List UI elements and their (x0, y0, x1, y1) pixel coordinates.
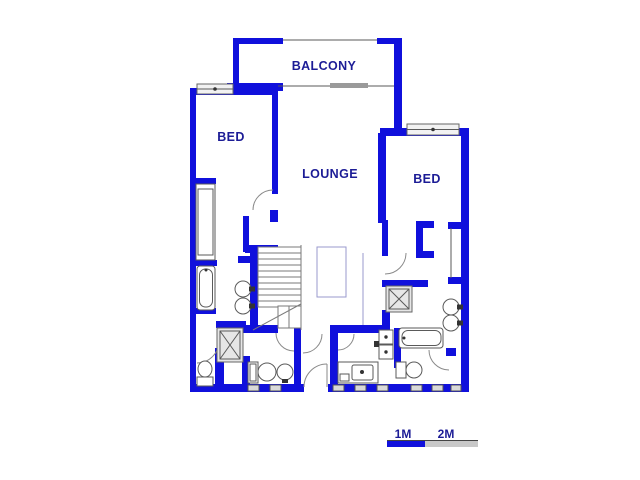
basin-tap (457, 321, 463, 326)
bathtub-right-tap (403, 337, 406, 340)
bidet-tap (282, 379, 288, 383)
vent (451, 385, 461, 391)
washbasin-symbol (258, 363, 276, 381)
scale-bar-blue-segment (387, 441, 425, 447)
basin-tap (249, 287, 255, 292)
bathtub-left-inner (200, 269, 213, 307)
basin-symbol (443, 299, 459, 315)
wall-segment (190, 88, 196, 392)
wardrobe-inner (198, 189, 213, 255)
door-arc-mid-bathroom (276, 333, 294, 351)
scale-label-1m: 1M (395, 427, 412, 441)
wall-segment (190, 178, 216, 184)
wall-segment (382, 220, 388, 256)
door-arc-entrance (304, 364, 327, 387)
wall-segment (272, 88, 278, 194)
bathtub-right-inner (402, 331, 441, 346)
door-arc-right-corridor (385, 253, 406, 274)
wall-segment (190, 260, 217, 266)
floor-plan-drawing: BALCONY BED LOUNGE BED 1M 2M (0, 0, 640, 480)
hob-symbol (340, 374, 349, 381)
window-dot (431, 128, 435, 132)
wall-segment (448, 277, 462, 284)
room-labels: BALCONY BED LOUNGE BED (217, 59, 441, 186)
staircase (253, 245, 301, 330)
wall-segment (330, 325, 382, 333)
wall-segment (416, 221, 434, 228)
bathtub-left-tap (205, 269, 208, 272)
vent (411, 385, 422, 391)
basin-symbol (235, 298, 251, 314)
wall-segment (394, 38, 402, 135)
scale-label-2m: 2M (438, 427, 455, 441)
floor-plan-canvas: BALCONY BED LOUNGE BED 1M 2M (0, 0, 640, 480)
sink-drain-dot (384, 350, 387, 353)
balcony-sliding-door-panel (330, 83, 368, 88)
wall-segment (270, 210, 278, 222)
bidet-symbol (277, 364, 293, 380)
wall-segment (448, 222, 462, 229)
vent (248, 385, 259, 391)
toilet-right-cistern (396, 362, 406, 378)
sink-tap (374, 341, 379, 347)
basin-tap (457, 305, 463, 310)
basin-symbol (235, 281, 251, 297)
vent (333, 385, 344, 391)
vent (355, 385, 366, 391)
wall-segment (233, 38, 283, 44)
toilet-left-cistern (197, 377, 213, 386)
wall-segment (294, 327, 301, 390)
vent (270, 385, 281, 391)
room-label-lounge: LOUNGE (302, 167, 358, 181)
vent (432, 385, 443, 391)
scale-bar-gray-segment (425, 441, 478, 447)
wall-segment (461, 128, 469, 392)
basin-tap (249, 304, 255, 309)
sink-drain-dot (384, 335, 387, 338)
toilet-right-symbol (406, 362, 422, 378)
wall-segment (378, 133, 386, 223)
room-label-bed-right: BED (413, 172, 441, 186)
wall-segment (330, 333, 338, 384)
wall-segment (446, 348, 456, 356)
vent (377, 385, 388, 391)
door-arc-entry-hall (303, 334, 322, 353)
wall-segment (238, 256, 251, 263)
room-label-balcony: BALCONY (292, 59, 357, 73)
door-arc-kitchen (338, 334, 354, 350)
door-arc-bed-left (253, 190, 273, 210)
table-symbol (317, 247, 346, 297)
window-dot (213, 87, 217, 91)
oven-dot (360, 370, 364, 374)
basin-symbol (443, 315, 459, 331)
fixtures (196, 184, 463, 391)
wall-segment (416, 251, 434, 258)
wall-segment (328, 384, 468, 392)
toilet-left-symbol (198, 361, 212, 377)
wall-segment (216, 321, 246, 328)
scale-bar: 1M 2M (387, 427, 478, 447)
room-label-bed-left: BED (217, 130, 245, 144)
